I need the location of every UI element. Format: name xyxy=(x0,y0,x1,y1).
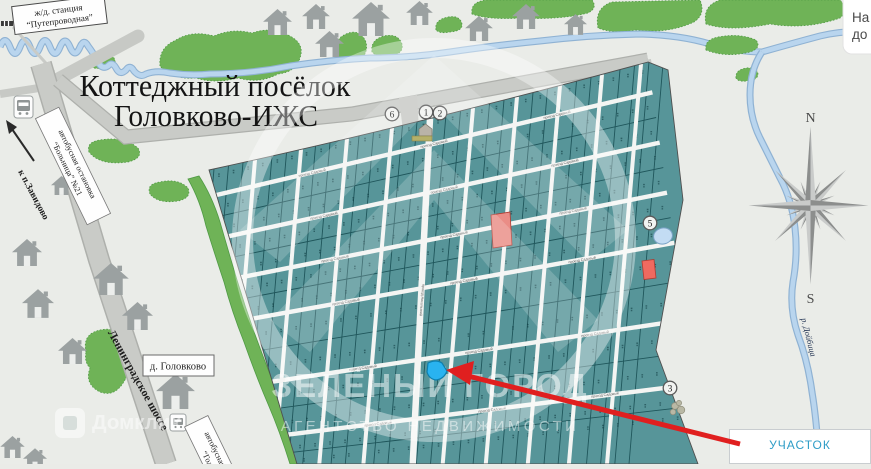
svg-text:5: 5 xyxy=(648,219,653,229)
svg-text:На: На xyxy=(852,10,870,25)
svg-text:S: S xyxy=(807,292,815,307)
svg-text:д. Головково: д. Головково xyxy=(150,362,206,373)
svg-text:N: N xyxy=(805,111,815,126)
svg-text:3: 3 xyxy=(668,384,673,394)
svg-text:до: до xyxy=(852,27,867,42)
svg-text:УЧАСТОК: УЧАСТОК xyxy=(769,438,831,452)
svg-text:АГЕНТСТВО НЕДВИЖИМОСТИ: АГЕНТСТВО НЕДВИЖИМОСТИ xyxy=(281,418,580,435)
svg-text:Домклик: Домклик xyxy=(92,411,181,434)
